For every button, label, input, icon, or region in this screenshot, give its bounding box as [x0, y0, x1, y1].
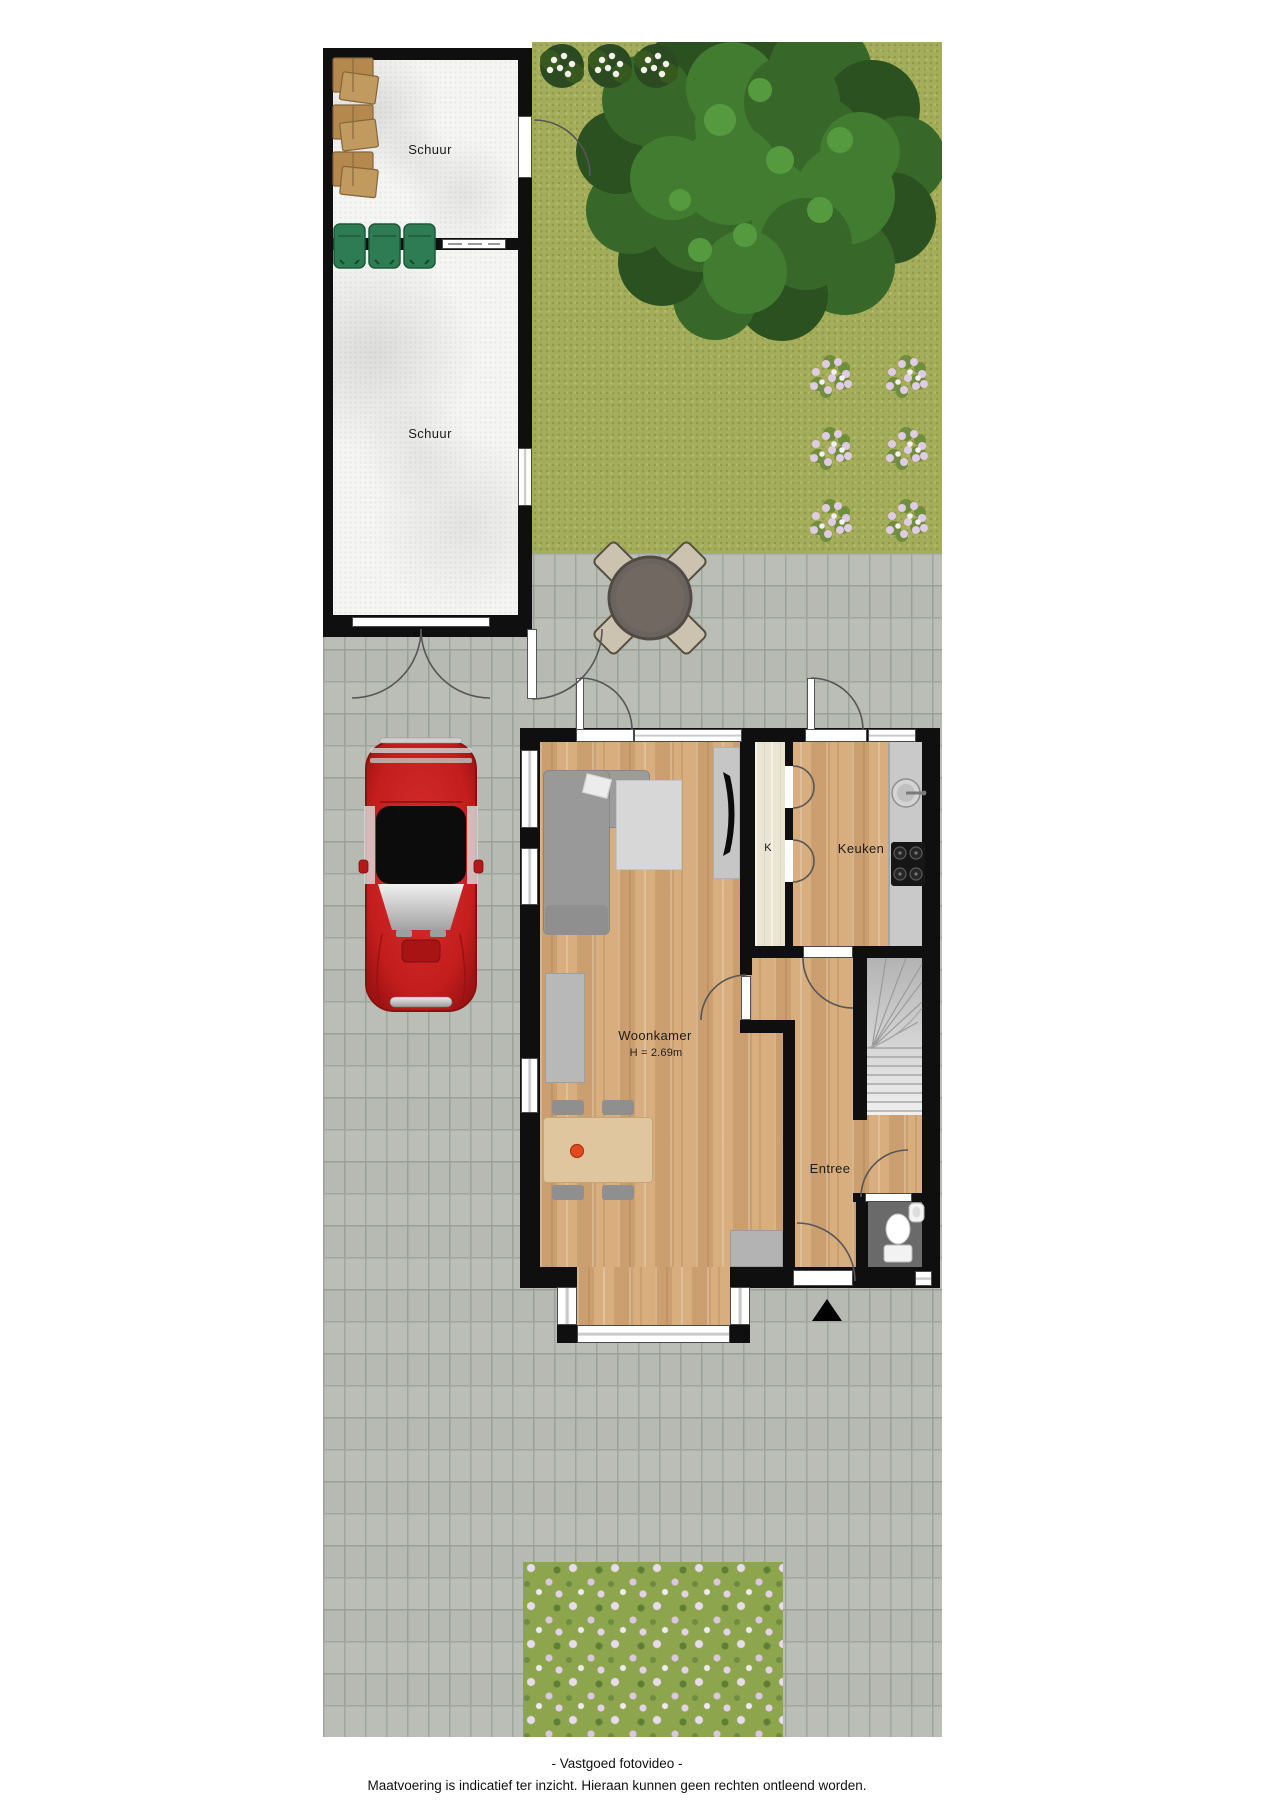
- dining-chair: [552, 1185, 584, 1200]
- dining-chair: [552, 1100, 584, 1115]
- toilet-window: [915, 1271, 932, 1286]
- footer-disclaimer: Maatvoering is indicatief ter inzicht. H…: [0, 1778, 1234, 1793]
- room-label-closet: K: [748, 842, 788, 854]
- room-label-shed-bottom: Schuur: [370, 426, 490, 441]
- living-side-window-2: [521, 848, 538, 905]
- bay-window-left: [557, 1287, 577, 1325]
- living-rear-window: [634, 729, 742, 742]
- dining-table: [543, 1117, 653, 1183]
- living-hall-wall-upper: [740, 742, 752, 975]
- sofa-chaise: [545, 905, 608, 935]
- kitchen-hall-door-opening: [803, 946, 853, 958]
- room-ceiling-height: H = 2.69m: [586, 1047, 726, 1059]
- dining-chair: [602, 1100, 634, 1115]
- bay-floor: [577, 1267, 730, 1325]
- shed-double-door-sill: [352, 617, 490, 627]
- sideboard: [545, 973, 585, 1083]
- toilet-side-wall: [856, 1202, 868, 1267]
- room-label-kitchen: Keuken: [811, 841, 911, 856]
- shed-garden-door-opening: [518, 116, 532, 178]
- room-label-shed-top: Schuur: [370, 142, 490, 157]
- toilet-room-floor: [868, 1202, 922, 1267]
- kitchen-rear-window: [868, 729, 916, 742]
- tv-stand: [713, 747, 740, 879]
- floorplan-canvas: Schuur Schuur K Keuken Woonkamer H = 2.6…: [0, 0, 1280, 1810]
- bay-corner-right: [730, 1325, 750, 1343]
- kitchen-patio-door-opening: [805, 729, 867, 742]
- living-patio-door-leaf: [576, 678, 584, 730]
- hall-cabinet: [730, 1230, 783, 1267]
- room-label-living: Woonkamer: [585, 1028, 725, 1043]
- living-hall-door-leaf: [741, 976, 751, 1020]
- room-label-hall: Entree: [780, 1161, 880, 1176]
- closet-bifold-opening: [785, 766, 793, 808]
- living-patio-door-opening: [576, 729, 634, 742]
- bay-corner-left: [557, 1325, 577, 1343]
- toilet-door-opening: [865, 1193, 912, 1202]
- garden-grass: [532, 42, 942, 553]
- flower-bed: [523, 1562, 783, 1737]
- rug: [616, 780, 682, 870]
- footer-credit: - Vastgoed fotovideo -: [0, 1756, 1234, 1771]
- dining-chair: [602, 1185, 634, 1200]
- living-side-window-1: [521, 750, 538, 828]
- bay-window-front: [577, 1325, 730, 1343]
- garden-gate-leaf: [527, 629, 537, 699]
- bay-window-right: [730, 1287, 750, 1325]
- kitchen-patio-door-leaf: [807, 678, 815, 730]
- shed-connecting-door: [442, 239, 506, 249]
- living-side-window-3: [521, 1058, 538, 1113]
- hall-jog-wall: [740, 1020, 795, 1033]
- living-hall-wall-lower: [783, 1033, 795, 1267]
- stairs-wall: [853, 958, 867, 1120]
- staircase: [867, 958, 922, 1115]
- front-door-sill: [793, 1270, 853, 1286]
- shed-window: [518, 448, 532, 506]
